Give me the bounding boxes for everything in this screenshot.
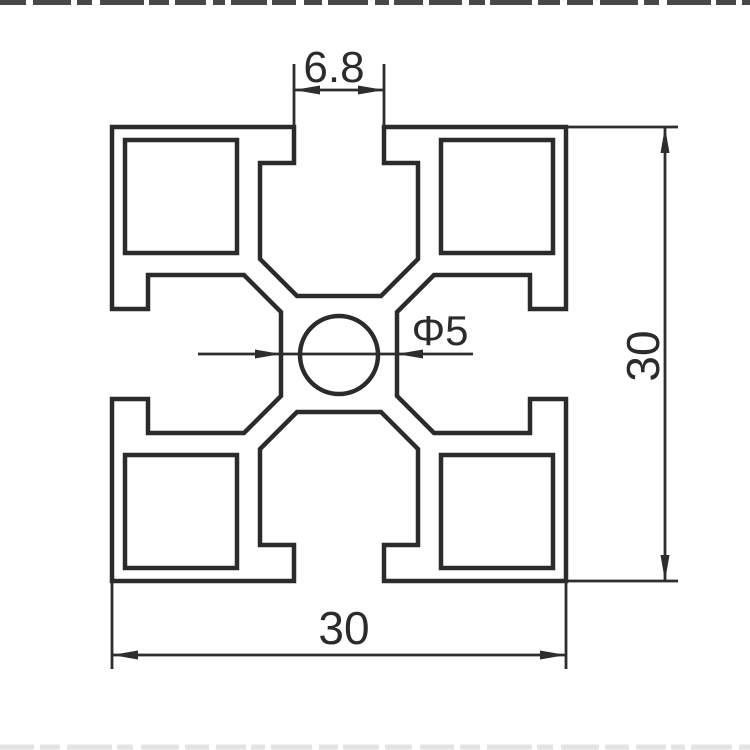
corner-cavity-bottom-left	[125, 455, 237, 568]
arrowhead-down-icon	[661, 555, 670, 581]
profile-drawing-svg: 6.8 Φ5 30 30	[0, 0, 750, 750]
dimension-overall-height: 30	[566, 127, 678, 581]
slot-opening-dimension-label: 6.8	[303, 43, 364, 92]
corner-cavity-top-left	[125, 140, 237, 253]
arrowhead-left-icon	[112, 651, 138, 660]
dimension-slot-opening: 6.8	[294, 43, 384, 127]
dimension-overall-width: 30	[112, 581, 566, 669]
overall-width-dimension-label: 30	[318, 602, 369, 654]
technical-drawing-canvas: 6.8 Φ5 30 30	[0, 0, 750, 750]
arrowhead-right-icon	[255, 350, 281, 359]
overall-height-dimension-label: 30	[617, 330, 669, 381]
corner-cavity-top-right	[441, 140, 553, 253]
arrowhead-up-icon	[661, 127, 670, 153]
corner-cavity-bottom-right	[441, 455, 553, 568]
hole-diameter-dimension-label: Φ5	[412, 307, 469, 354]
arrowhead-right-icon	[540, 651, 566, 660]
